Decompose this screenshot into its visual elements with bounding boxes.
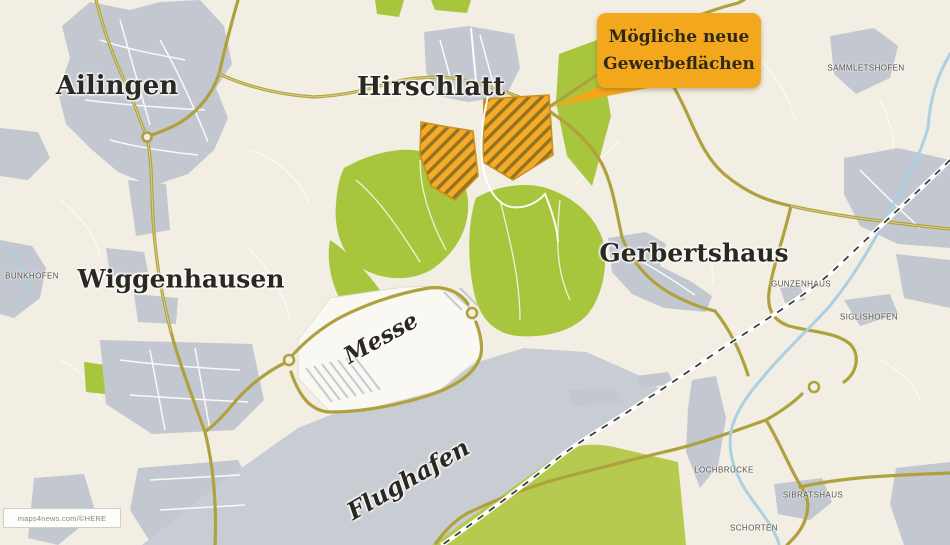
roundabout bbox=[284, 355, 294, 365]
urban-area bbox=[134, 294, 178, 324]
label-hirschlatt: Hirschlatt bbox=[357, 72, 505, 102]
label-lochbruecke: LOCHBRÜCKE bbox=[694, 466, 754, 475]
label-schorten: SCHORTEN bbox=[730, 524, 778, 533]
roundabout bbox=[467, 308, 477, 318]
label-gerbertshaus: Gerbertshaus bbox=[599, 239, 788, 268]
callout-line-2: Gewerbeflächen bbox=[603, 51, 755, 77]
label-wiggenhausen: Wiggenhausen bbox=[78, 265, 285, 294]
label-sammletshofen: SAMMLETSHOFEN bbox=[827, 64, 904, 73]
label-sibratshaus: SIBRATSHAUS bbox=[783, 491, 843, 500]
roundabout bbox=[809, 382, 819, 392]
map-screenshot: Ailingen Hirschlatt Wiggenhausen Gerbert… bbox=[0, 0, 950, 545]
label-gunzenhaus: GUNZENHAUS bbox=[771, 280, 831, 289]
roundabout bbox=[143, 133, 152, 142]
callout-new-commercial-areas: Mögliche neue Gewerbeflächen bbox=[597, 13, 761, 88]
label-siglishofen: SIGLISHOFEN bbox=[840, 313, 898, 322]
map-credit: maps4news.com/©HERE bbox=[3, 508, 121, 528]
label-ailingen: Ailingen bbox=[56, 71, 178, 101]
callout-line-1: Mögliche neue bbox=[609, 24, 750, 50]
label-bunkhofen: BUNKHOFEN bbox=[5, 272, 59, 281]
